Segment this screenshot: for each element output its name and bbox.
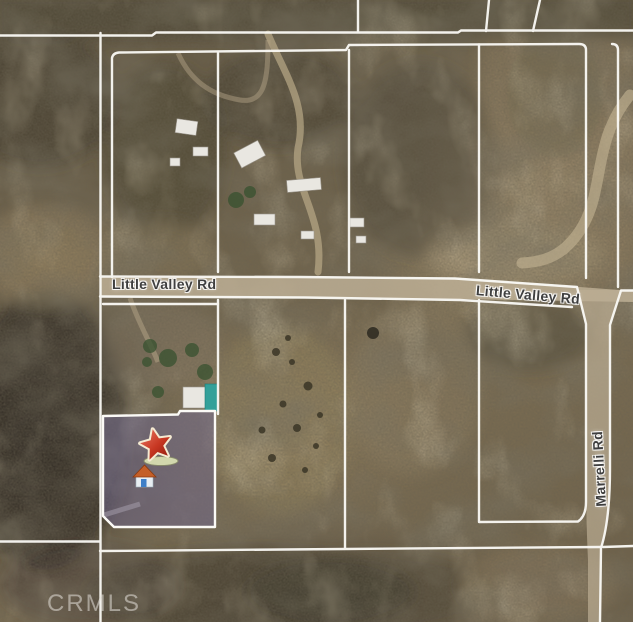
map-overlay <box>0 0 633 622</box>
highlighted-parcel[interactable] <box>103 411 215 527</box>
crmls-watermark: CRMLS <box>47 590 141 618</box>
road-label-little-valley-rd-west: Little Valley Rd <box>112 276 216 292</box>
map-canvas[interactable]: Little Valley Rd Little Valley Rd Marrel… <box>0 0 633 622</box>
terrain-noise-speckle <box>0 0 633 622</box>
